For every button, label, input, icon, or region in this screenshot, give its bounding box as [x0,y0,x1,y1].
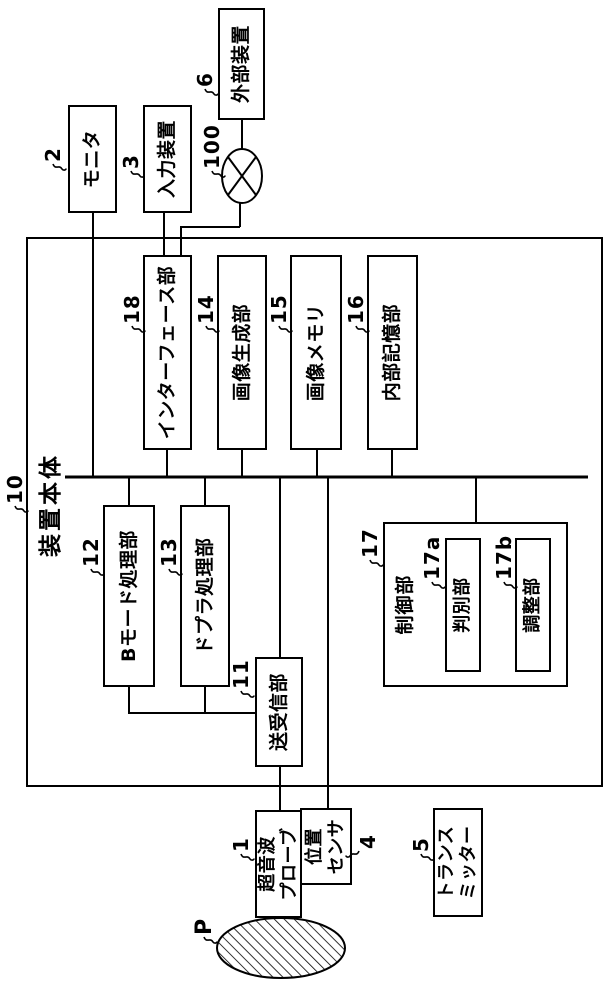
leader-squiggle-icon [14,505,29,514]
control-label: 制御部 [390,522,417,687]
ref-label-11: 11 [229,659,253,689]
block-image-memory: 画像メモリ [290,255,342,450]
ref-label-P: P [192,918,217,935]
leader-squiggle-icon [205,325,220,334]
block-tx-rx: 送受信部 [255,657,303,767]
patent-figure-page: { "figure": { "kind": "ultrasound-appara… [0,0,607,982]
ref-label-3: 3 [119,154,143,169]
ref-label-14: 14 [194,294,218,324]
leader-squiggle-icon [130,170,145,179]
diagram-stage: 装置本体 インターフェース部 画像生成部 画像メモリ 内部記憶部 Bモード処理部… [0,0,607,982]
leader-squiggle-icon [240,690,255,699]
ref-label-18: 18 [120,294,144,324]
leader-squiggle-icon [369,559,384,568]
block-input-device: 入力装置 [143,105,192,213]
ref-label-2: 2 [41,147,65,162]
block-ultrasound-probe: 超音波 プローブ [255,810,302,918]
block-internal-storage: 内部記憶部 [367,255,418,450]
leader-squiggle-icon [90,568,105,577]
ref-label-100: 100 [200,124,224,169]
ref-label-4: 4 [356,834,380,849]
leader-squiggle-icon [345,850,360,859]
network-circle-x-icon [222,149,262,203]
block-discriminator: 判別部 [445,538,481,672]
ref-label-12: 12 [79,537,103,567]
leader-squiggle-icon [131,325,146,334]
ref-label-13: 13 [157,537,181,567]
subject-body-ellipse [217,918,345,978]
block-position-sensor: 位置 センサ [300,808,352,885]
leader-squiggle-icon [503,581,518,590]
leader-squiggle-icon [278,325,293,334]
block-interface: インターフェース部 [143,255,192,450]
leader-squiggle-icon [420,853,435,862]
block-transmitter: トランス ミッター [433,808,483,917]
ref-label-5: 5 [409,837,433,852]
leader-squiggle-icon [431,581,446,590]
ref-label-10: 10 [3,474,27,504]
block-monitor: モニタ [68,105,117,213]
leader-squiggle-icon [168,568,183,577]
ref-label-16: 16 [344,294,368,324]
block-external-device: 外部装置 [218,8,265,120]
leader-squiggle-icon [52,163,67,172]
main-body-title: 装置本体 [31,453,65,557]
ref-label-1: 1 [229,837,253,852]
leader-squiggle-icon [204,88,219,97]
leader-squiggle-icon [203,936,218,945]
block-doppler: ドプラ処理部 [180,505,230,687]
block-adjuster: 調整部 [515,538,551,672]
ref-label-17a: 17a [420,536,444,580]
block-b-mode: Bモード処理部 [103,505,155,687]
ref-label-17b: 17b [492,535,516,580]
leader-squiggle-icon [211,170,226,179]
leader-squiggle-icon [240,853,255,862]
leader-squiggle-icon [355,325,370,334]
block-image-generator: 画像生成部 [217,255,267,450]
ref-label-6: 6 [193,72,217,87]
ref-label-17: 17 [358,528,382,558]
ref-label-15: 15 [267,294,291,324]
